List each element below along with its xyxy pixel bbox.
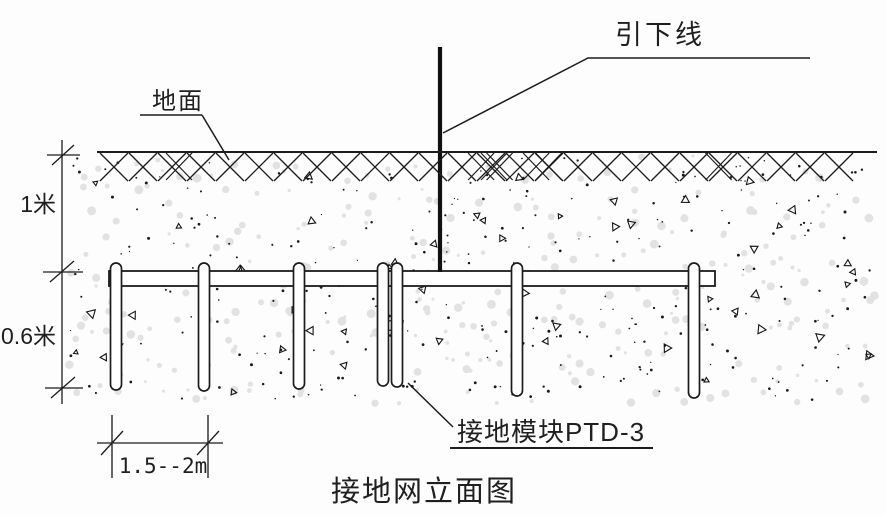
- down-lead-leader: [443, 58, 810, 133]
- ground-rod: [689, 263, 700, 398]
- grounding-elevation-diagram: 引下线 地面 接地模块PTD-3 1米 0.6米: [0, 0, 886, 515]
- depth-dimension: [43, 140, 83, 404]
- drawing-title: 接地网立面图: [331, 475, 517, 508]
- down-lead-label: 引下线: [615, 20, 705, 50]
- ground-rod: [392, 263, 403, 387]
- ground-rod: [199, 263, 210, 391]
- ground-module-label: 接地模块PTD-3: [457, 417, 645, 447]
- ground-rod: [512, 263, 523, 396]
- module-depth-label: 0.6米: [1, 323, 56, 349]
- module-spacing-label: 1.5--2m: [119, 454, 208, 478]
- ground-surface-label: 地面: [152, 88, 204, 115]
- ground-rod: [294, 263, 305, 389]
- ground-rod: [378, 263, 389, 386]
- ground-hatch: [100, 153, 853, 181]
- ground-rod: [111, 263, 122, 390]
- burial-depth-label: 1米: [20, 191, 56, 217]
- ground-surface-leader: [140, 115, 229, 160]
